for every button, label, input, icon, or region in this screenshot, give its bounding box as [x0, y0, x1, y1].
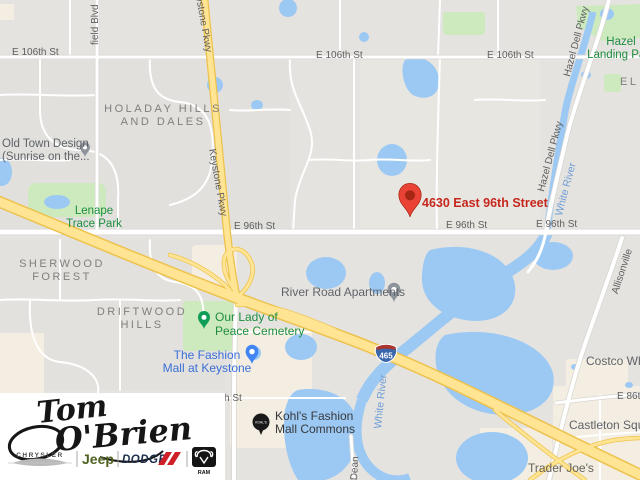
dealer-logo-art: Tom O'Brien CHRYSLER Jeep DODGE RAM: [0, 393, 225, 480]
ram-wordmark: RAM: [198, 470, 211, 476]
dealer-logo-overlay: Tom O'Brien CHRYSLER Jeep DODGE RAM: [0, 393, 225, 480]
kohls-badge-text: KOHL'S: [255, 421, 266, 425]
shield-number: 465: [379, 352, 393, 361]
ram-logo: RAM: [192, 447, 216, 476]
dodge-logo: DODGE: [122, 452, 181, 466]
chrysler-wordmark: CHRYSLER: [16, 452, 64, 459]
map-canvas[interactable]: 465 KOHL'S: [0, 0, 640, 480]
chrysler-logo: CHRYSLER: [8, 452, 72, 466]
jeep-wordmark: Jeep: [82, 451, 114, 467]
